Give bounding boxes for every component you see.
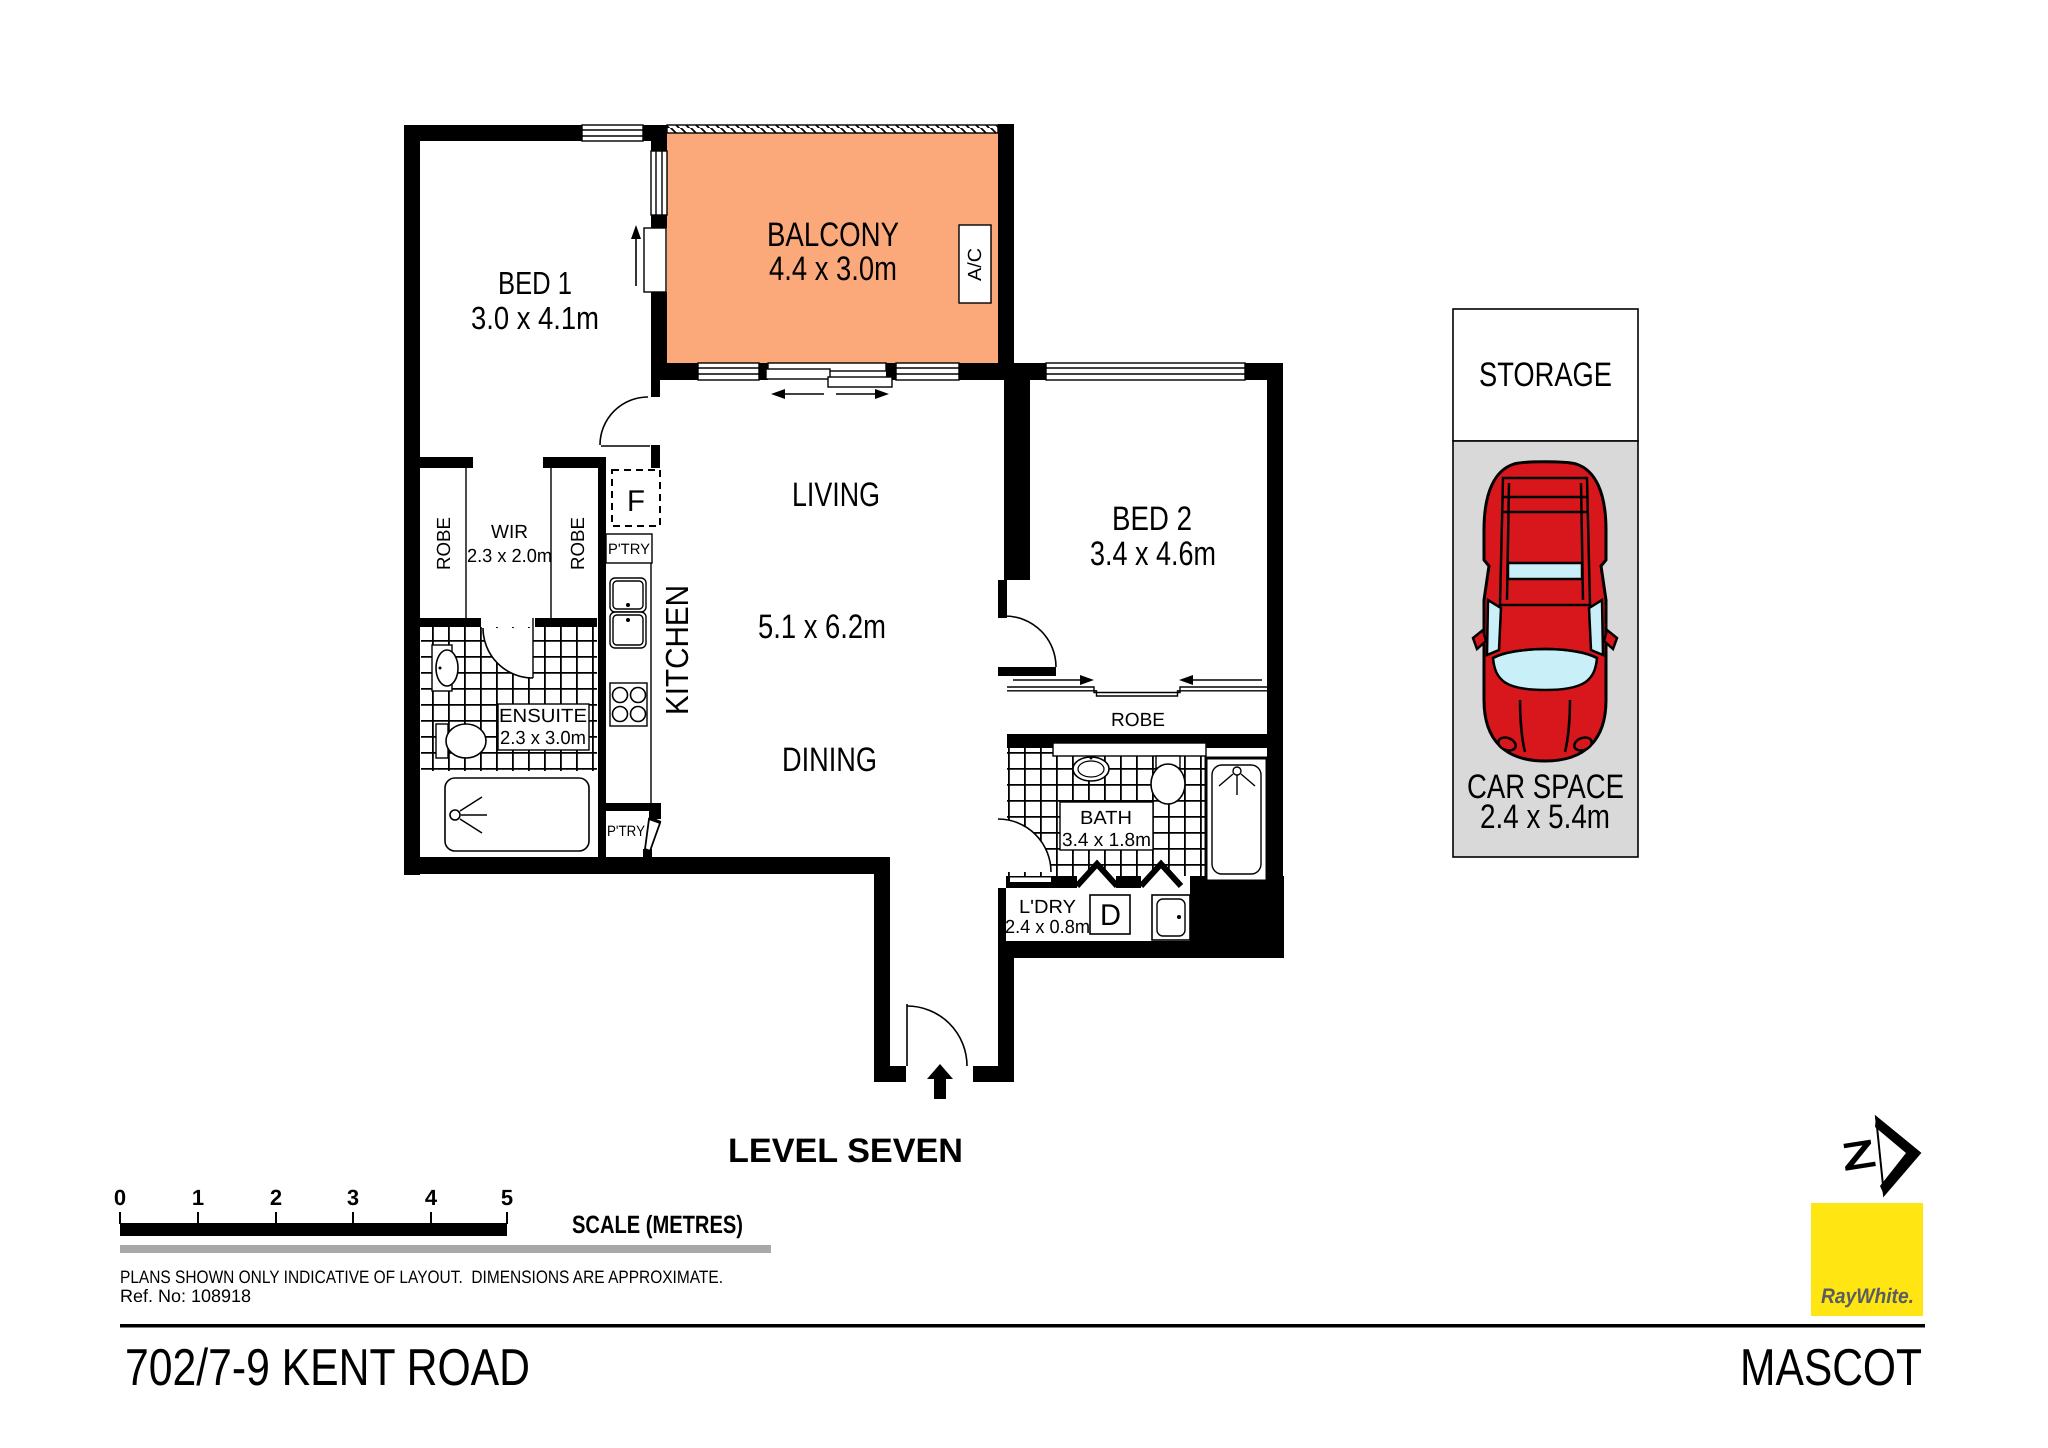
svg-text:702/7-9 KENT ROAD: 702/7-9 KENT ROAD [125, 1339, 530, 1397]
svg-text:WIR: WIR [491, 522, 528, 543]
svg-text:PLANS SHOWN ONLY INDICATIVE OF: PLANS SHOWN ONLY INDICATIVE OF LAYOUT. D… [120, 1267, 723, 1287]
svg-text:2.3 x 2.0m: 2.3 x 2.0m [467, 546, 552, 567]
svg-text:BED 2: BED 2 [1112, 500, 1192, 538]
svg-text:Z: Z [1839, 1132, 1879, 1180]
svg-text:BED 1: BED 1 [498, 265, 572, 301]
svg-text:1: 1 [192, 1185, 204, 1210]
svg-text:RayWhite.: RayWhite. [1821, 1285, 1914, 1308]
svg-text:LIVING: LIVING [792, 476, 880, 514]
svg-text:4: 4 [425, 1185, 438, 1210]
svg-text:3.4 x 1.8m: 3.4 x 1.8m [1062, 830, 1151, 851]
svg-text:P'TRY: P'TRY [607, 823, 645, 840]
svg-text:DINING: DINING [782, 741, 877, 779]
svg-text:STORAGE: STORAGE [1479, 356, 1612, 394]
svg-text:0: 0 [114, 1185, 126, 1210]
svg-text:LEVEL SEVEN: LEVEL SEVEN [728, 1132, 963, 1170]
svg-text:4.4 x 3.0m: 4.4 x 3.0m [769, 250, 897, 288]
svg-text:P'TRY: P'TRY [608, 541, 650, 558]
svg-text:ROBE: ROBE [434, 517, 455, 570]
svg-text:5.1 x 6.2m: 5.1 x 6.2m [758, 608, 886, 646]
svg-text:L'DRY: L'DRY [1019, 897, 1076, 918]
svg-text:F: F [627, 485, 645, 518]
svg-text:2.4 x 0.8m: 2.4 x 0.8m [1005, 917, 1090, 938]
svg-text:A/C: A/C [965, 248, 986, 281]
svg-text:2.4 x 5.4m: 2.4 x 5.4m [1480, 798, 1610, 836]
svg-text:5: 5 [501, 1185, 513, 1210]
svg-text:3.4 x 4.6m: 3.4 x 4.6m [1090, 535, 1216, 573]
svg-text:MASCOT: MASCOT [1740, 1339, 1922, 1397]
svg-text:2: 2 [270, 1185, 282, 1210]
svg-text:2.3 x 3.0m: 2.3 x 3.0m [500, 728, 586, 749]
svg-text:Ref. No: 108918: Ref. No: 108918 [120, 1286, 251, 1306]
svg-text:D: D [1100, 899, 1121, 932]
svg-text:3.0 x 4.1m: 3.0 x 4.1m [471, 300, 599, 336]
svg-text:BALCONY: BALCONY [767, 216, 899, 254]
svg-text:ENSUITE: ENSUITE [499, 706, 587, 727]
svg-text:ROBE: ROBE [1111, 710, 1165, 731]
svg-text:3: 3 [347, 1185, 359, 1210]
svg-text:BATH: BATH [1080, 808, 1132, 829]
svg-text:SCALE (METRES): SCALE (METRES) [572, 1211, 743, 1239]
svg-text:KITCHEN: KITCHEN [659, 585, 695, 715]
svg-text:ROBE: ROBE [568, 517, 589, 570]
